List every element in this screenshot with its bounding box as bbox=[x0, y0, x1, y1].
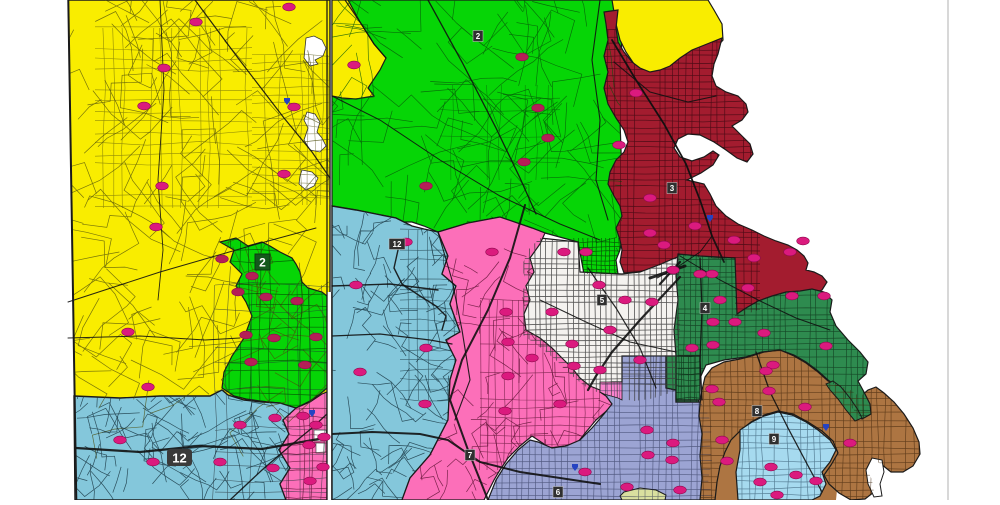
svg-text:6: 6 bbox=[556, 488, 561, 497]
svg-text:2: 2 bbox=[259, 256, 266, 270]
svg-text:5: 5 bbox=[600, 296, 605, 305]
svg-text:4: 4 bbox=[703, 304, 708, 313]
svg-text:8: 8 bbox=[755, 407, 760, 416]
svg-text:3: 3 bbox=[670, 184, 675, 193]
svg-text:12: 12 bbox=[393, 240, 402, 249]
svg-text:2: 2 bbox=[476, 32, 481, 41]
svg-text:7: 7 bbox=[468, 451, 473, 460]
svg-text:12: 12 bbox=[172, 451, 186, 466]
svg-text:9: 9 bbox=[772, 435, 777, 444]
